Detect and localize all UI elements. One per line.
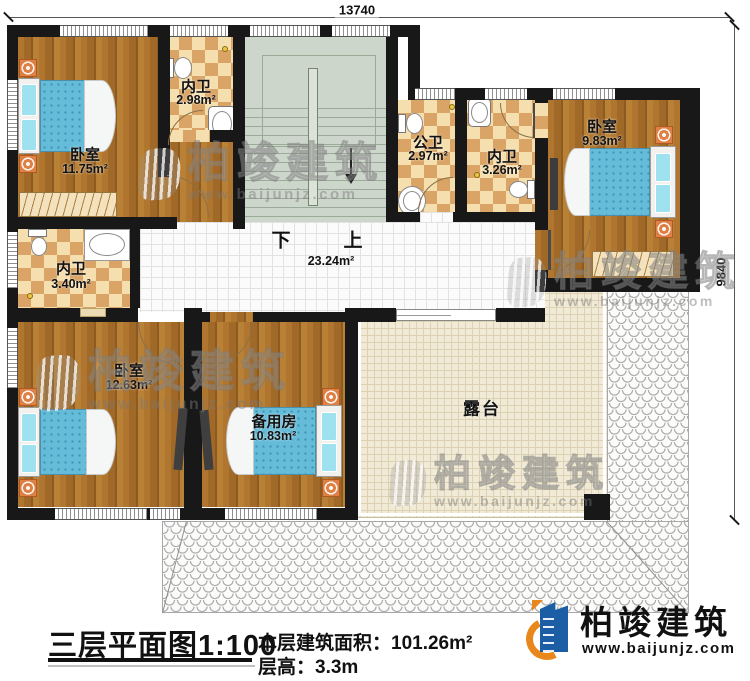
floor-height-value: 3.3m — [315, 657, 358, 678]
door-gap — [535, 103, 548, 138]
window — [250, 25, 320, 37]
dimension-line-right — [734, 25, 735, 520]
room-area: 2.97m² — [408, 149, 448, 163]
window — [55, 508, 147, 520]
nightstand — [655, 126, 673, 144]
closet — [19, 192, 117, 217]
tv-panel — [550, 158, 558, 210]
room-area: 2.98m² — [176, 93, 216, 107]
nightstand — [655, 220, 673, 238]
window — [7, 232, 18, 288]
logo-building-icon — [540, 602, 568, 652]
valve-knob — [474, 172, 480, 178]
bed-blanket — [564, 148, 590, 216]
nightstand — [19, 388, 37, 406]
door-gap — [420, 212, 453, 222]
room-area: 3.40m² — [51, 277, 91, 291]
logo-website: www.baijunjz.com — [582, 640, 735, 657]
sliding-door — [396, 309, 496, 321]
terrace-edge — [358, 318, 361, 514]
room-label: 内卫 — [56, 258, 86, 279]
wall-baths-divider — [455, 100, 467, 212]
bed-pillow — [321, 412, 337, 441]
floor-area-line: 本层建筑面积：101.26m² — [258, 628, 472, 655]
wall-ensuite-ml-east — [130, 229, 140, 308]
nightstand — [19, 479, 37, 497]
dimension-height: 9840 — [714, 254, 729, 291]
wall-bedroom-tr-south — [535, 278, 700, 292]
window — [553, 88, 615, 100]
room-area: 10.83m² — [250, 429, 297, 443]
door-gap — [210, 312, 253, 322]
bed-blanket — [84, 80, 116, 152]
bed-pillow — [21, 444, 37, 473]
stair-up-label: 上 — [343, 226, 362, 253]
nightstand — [322, 388, 340, 406]
toilet-tank — [527, 180, 535, 199]
company-logo: 柏竣建筑 www.baijunjz.com — [524, 596, 750, 668]
wall-hall-south-b — [496, 308, 545, 322]
sink-basin — [471, 102, 488, 123]
terrace-edge — [352, 513, 606, 516]
window — [7, 80, 18, 150]
stair-arrow-head — [345, 174, 357, 184]
stair-rail — [308, 68, 318, 206]
toilet-tank — [398, 114, 406, 133]
bed-pillow — [21, 119, 37, 151]
door-gap — [535, 230, 548, 270]
nightstand — [322, 479, 340, 497]
room-area: 12.63m² — [106, 378, 153, 392]
valve-knob — [27, 293, 33, 299]
bed-mattress — [588, 148, 650, 216]
dimension-width: 13740 — [335, 3, 379, 18]
wall-bedroom-bl-north — [7, 308, 138, 322]
sink-basin — [89, 233, 125, 256]
wall-hall-south-a — [358, 308, 396, 322]
nightstand — [19, 155, 37, 173]
toilet-tank — [28, 229, 47, 237]
floor-plan: 卧室 11.75m² 内卫 2.98m² 公卫 2.97m² 内卫 3.26m²… — [0, 0, 750, 681]
closet — [592, 251, 674, 277]
floor-height-label: 层高： — [258, 657, 315, 678]
room-area: 11.75m² — [62, 162, 108, 176]
bed-pillow — [321, 443, 337, 472]
window — [485, 88, 527, 100]
floor-area-value: 101.26m² — [391, 633, 472, 654]
window — [225, 508, 317, 520]
bed-pillow — [21, 413, 37, 442]
nightstand — [19, 59, 37, 77]
bed-pillow — [655, 153, 671, 182]
bed-blanket — [86, 409, 116, 475]
floor-height-line: 层高：3.3m — [258, 652, 358, 679]
wall-right — [680, 88, 700, 292]
wall-terrace-west — [345, 308, 358, 520]
wall-stair-east — [386, 37, 398, 222]
window — [415, 88, 455, 100]
terrace-edge — [603, 290, 606, 516]
stair-down-label: 下 — [271, 226, 290, 253]
toilet-bowl — [31, 237, 47, 256]
stair-arrow-stem — [350, 148, 352, 174]
floor-area-label: 本层建筑面积： — [258, 633, 391, 654]
hall-area: 23.24m² — [308, 254, 355, 268]
title-underline-thick — [48, 658, 252, 662]
wall-baths-south — [398, 212, 535, 222]
window — [170, 25, 228, 37]
window — [60, 25, 148, 37]
window — [150, 508, 180, 520]
room-label: 露台 — [463, 395, 501, 420]
logo-accent-icon — [532, 600, 543, 611]
room-area: 3.26m² — [482, 163, 522, 177]
wall-ensuite-tl-west — [158, 37, 170, 177]
door-leaf — [548, 230, 551, 270]
wall-hall-north — [7, 217, 177, 229]
title-underline-thin — [48, 665, 255, 667]
stair-landing — [262, 55, 376, 147]
window — [332, 25, 390, 37]
valve-knob — [222, 46, 228, 52]
terrace-column — [584, 494, 610, 520]
bed-pillow — [21, 84, 37, 116]
toilet-bowl — [509, 181, 528, 198]
door-leaf — [533, 103, 535, 138]
room-area: 9.83m² — [582, 134, 622, 148]
door-threshold — [80, 308, 106, 317]
logo-company: 柏竣建筑 — [580, 596, 732, 644]
window — [7, 328, 18, 388]
bed-pillow — [655, 184, 671, 213]
